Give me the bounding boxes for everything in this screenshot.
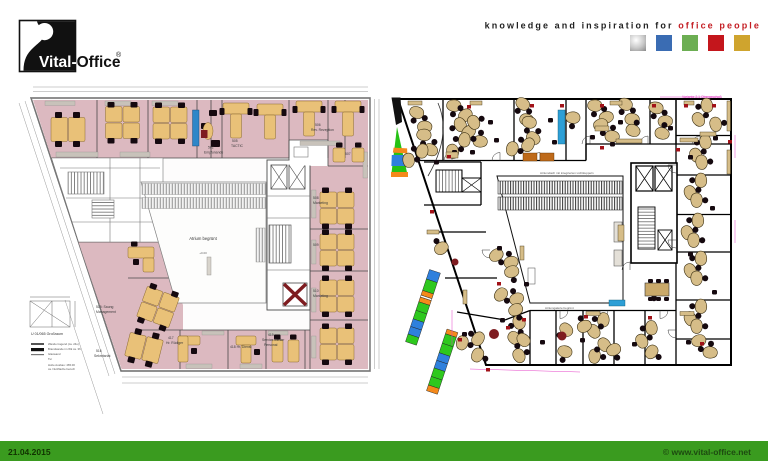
svg-text:Wande tragend (ca. 24u): Wande tragend (ca. 24u) — [48, 342, 79, 346]
svg-text:506: 506 — [315, 123, 321, 127]
svg-text:505: 505 — [232, 139, 238, 143]
svg-text:Atriumgalerie begrünt: Atriumgalerie begrünt — [545, 306, 574, 310]
svg-text:Tur: Tur — [48, 357, 52, 361]
svg-text:knowledge and inspiration for: knowledge and inspiration for office peo… — [485, 21, 761, 31]
svg-text:516: 516 — [96, 349, 102, 353]
svg-text:Brandwande im Wk ca. 36: Brandwande im Wk ca. 36 — [48, 347, 81, 351]
svg-text:Marketing: Marketing — [313, 201, 328, 205]
svg-text:Personal: Personal — [264, 343, 278, 347]
svg-text:© www.vital-office.net: © www.vital-office.net — [663, 447, 751, 457]
svg-text:Vital-Office: Vital-Office — [39, 54, 121, 71]
svg-text:TACTIC: TACTIC — [231, 144, 244, 148]
svg-text:Sekretariat: Sekretariat — [94, 354, 110, 358]
svg-text:Empfunande: Empfunande — [204, 151, 223, 155]
svg-text:Marketing: Marketing — [313, 294, 328, 298]
svg-text:Management: Management — [96, 310, 116, 314]
svg-text:508: 508 — [313, 196, 319, 200]
svg-text:Atrium begrünt: Atrium begrünt — [189, 236, 217, 241]
svg-text:®: ® — [116, 51, 122, 59]
svg-text:509: 509 — [313, 243, 319, 247]
svg-text:419: 419 — [268, 333, 274, 337]
svg-text:507: 507 — [345, 152, 351, 156]
svg-text:+0.00: +0.00 — [199, 251, 207, 255]
svg-text:Atriumdach mit integrierten Li: Atriumdach mit integrierten Lichtkuppeln — [540, 171, 594, 175]
svg-text:515: Saung: 515: Saung — [96, 305, 113, 309]
svg-text:417: 417 — [168, 336, 174, 340]
svg-text:Rev. Rezeption: Rev. Rezeption — [311, 128, 334, 132]
svg-text:ca. Nutzflache beruch: ca. Nutzflache beruch — [48, 367, 75, 371]
svg-text:502: 502 — [208, 146, 214, 150]
svg-text:21.04.2015: 21.04.2015 — [8, 447, 51, 457]
svg-text:U 01/065 Großraum: U 01/065 Großraum — [31, 332, 63, 336]
svg-text:Variante 2.1 Obergeschoß: Variante 2.1 Obergeschoß — [682, 95, 722, 99]
svg-text:Hr. Rüdiger: Hr. Rüdiger — [166, 341, 184, 345]
svg-text:418 Hr. Dienst: 418 Hr. Dienst — [230, 345, 252, 349]
svg-text:Service Center: Service Center — [262, 338, 285, 342]
svg-text:Glaswand: Glaswand — [48, 352, 61, 356]
svg-text:510: 510 — [313, 289, 319, 293]
